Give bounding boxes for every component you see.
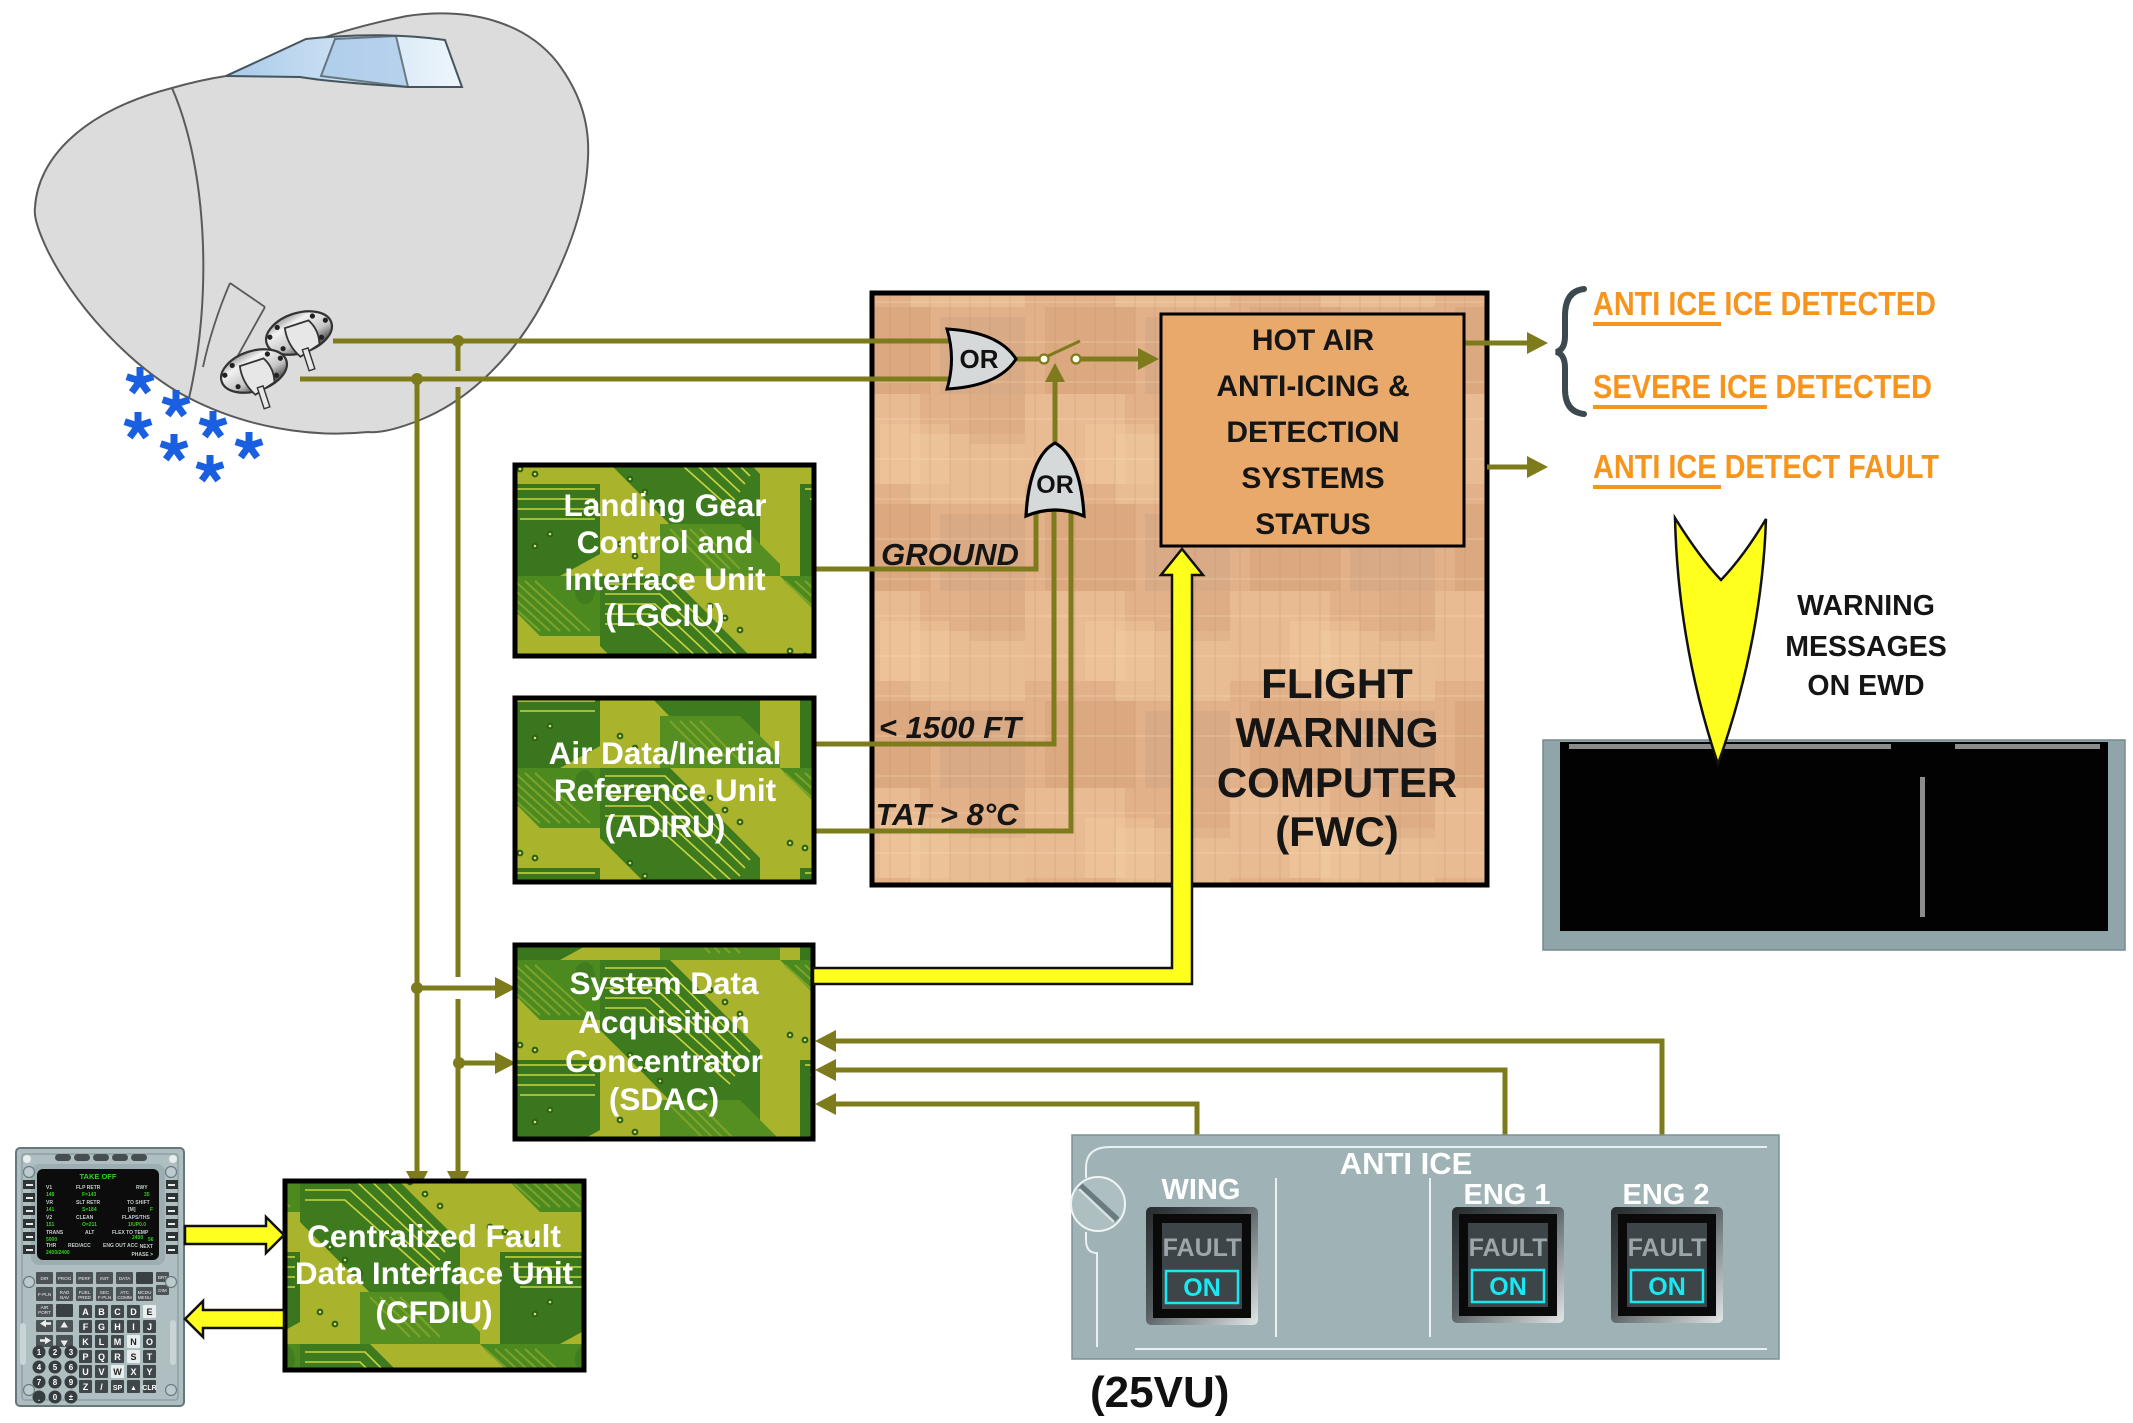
- svg-text:(FWC): (FWC): [1275, 808, 1399, 855]
- svg-text:INIT: INIT: [100, 1276, 109, 1281]
- svg-text:STATUS: STATUS: [1255, 508, 1371, 541]
- svg-text:RED/ACC: RED/ACC: [68, 1243, 91, 1249]
- svg-text:[M]: [M]: [128, 1207, 136, 1213]
- svg-text:TAT > 8°C: TAT > 8°C: [875, 797, 1019, 832]
- svg-text:ENG 1: ENG 1: [1463, 1179, 1550, 1211]
- svg-text:System Data: System Data: [569, 965, 759, 1001]
- svg-text:F-PLN: F-PLN: [98, 1295, 111, 1300]
- svg-text:H: H: [114, 1322, 121, 1332]
- svg-text:9: 9: [69, 1378, 74, 1387]
- svg-text:J: J: [147, 1322, 152, 1332]
- svg-text:NEXT: NEXT: [140, 1244, 153, 1250]
- svg-text:T: T: [147, 1352, 153, 1362]
- svg-text:ANTI ICE ICE DETECTED: ANTI ICE ICE DETECTED: [1593, 285, 1936, 322]
- svg-text:K: K: [82, 1337, 89, 1347]
- svg-text:FLEX TO TEMP: FLEX TO TEMP: [112, 1230, 149, 1236]
- svg-text:L: L: [99, 1337, 105, 1347]
- svg-text:(25VU): (25VU): [1090, 1368, 1229, 1417]
- svg-text:3: 3: [69, 1348, 74, 1357]
- svg-text:P: P: [82, 1352, 88, 1362]
- svg-text:TO SHIFT: TO SHIFT: [127, 1200, 150, 1206]
- svg-text:V1: V1: [46, 1185, 52, 1191]
- svg-text:R: R: [114, 1352, 121, 1362]
- svg-text:DIM: DIM: [158, 1288, 167, 1293]
- svg-text:FLAPS/THS: FLAPS/THS: [122, 1215, 150, 1221]
- svg-text:ENG 2: ENG 2: [1622, 1179, 1709, 1211]
- svg-text:Q: Q: [98, 1352, 105, 1362]
- svg-text:ALT: ALT: [85, 1230, 94, 1236]
- svg-text:SP: SP: [113, 1385, 123, 1392]
- svg-text:< 1500 FT: < 1500 FT: [879, 710, 1024, 745]
- svg-text:O: O: [146, 1337, 153, 1347]
- svg-text:F=143: F=143: [82, 1192, 97, 1198]
- svg-text:Control and: Control and: [577, 524, 754, 560]
- svg-text:MESSAGES: MESSAGES: [1785, 631, 1947, 663]
- svg-text:ON: ON: [1648, 1273, 1686, 1301]
- svg-text:VR: VR: [46, 1200, 53, 1206]
- svg-text:Data Interface Unit: Data Interface Unit: [295, 1255, 574, 1291]
- svg-text:4: 4: [37, 1363, 42, 1372]
- svg-text:(SDAC): (SDAC): [609, 1081, 719, 1117]
- svg-text:2: 2: [53, 1348, 58, 1357]
- svg-text:▲: ▲: [130, 1385, 137, 1392]
- svg-text:Acquisition: Acquisition: [578, 1004, 750, 1040]
- svg-text:Air Data/Inertial: Air Data/Inertial: [549, 735, 782, 771]
- svg-text:8: 8: [53, 1378, 58, 1387]
- svg-text:S=184: S=184: [82, 1207, 97, 1213]
- svg-text:Z: Z: [83, 1382, 89, 1392]
- svg-text:5: 5: [53, 1363, 58, 1372]
- svg-text:PRED: PRED: [78, 1295, 91, 1300]
- svg-text:ON: ON: [1183, 1274, 1221, 1302]
- svg-text:NAV: NAV: [60, 1295, 70, 1300]
- svg-text:WARNING: WARNING: [1236, 709, 1439, 756]
- svg-text:ANTI-ICING &: ANTI-ICING &: [1216, 370, 1409, 403]
- svg-text:ON EWD: ON EWD: [1807, 670, 1924, 702]
- svg-text:6: 6: [69, 1363, 74, 1372]
- svg-text:CLEAN: CLEAN: [76, 1215, 94, 1221]
- svg-text:Interface Unit: Interface Unit: [564, 561, 766, 597]
- svg-text:ON: ON: [1489, 1273, 1527, 1301]
- svg-text:DATA: DATA: [119, 1276, 132, 1281]
- svg-text:WING: WING: [1162, 1174, 1241, 1206]
- svg-text:F: F: [150, 1207, 153, 1213]
- svg-text:FAULT: FAULT: [1469, 1234, 1548, 1262]
- svg-text:1/UP0.0: 1/UP0.0: [128, 1222, 146, 1228]
- svg-text:151: 151: [46, 1222, 55, 1228]
- svg-text:X: X: [130, 1367, 136, 1377]
- svg-text:SEVERE ICE DETECTED: SEVERE ICE DETECTED: [1593, 368, 1932, 405]
- svg-text:A: A: [82, 1307, 89, 1317]
- svg-text:Concentrator: Concentrator: [565, 1043, 763, 1079]
- svg-text:ENG OUT ACC: ENG OUT ACC: [103, 1243, 138, 1249]
- svg-text:D: D: [130, 1307, 137, 1317]
- svg-text:PHASE >: PHASE >: [131, 1252, 153, 1258]
- svg-text:SYSTEMS: SYSTEMS: [1241, 462, 1384, 495]
- svg-text:G: G: [98, 1322, 105, 1332]
- svg-text:±: ±: [69, 1393, 74, 1402]
- svg-text:B: B: [98, 1307, 105, 1317]
- svg-text:2400: 2400: [132, 1235, 143, 1241]
- svg-text:RWY: RWY: [136, 1185, 148, 1191]
- svg-text:E: E: [146, 1307, 152, 1317]
- svg-text:56: 56: [148, 1237, 154, 1243]
- svg-text:148: 148: [46, 1192, 55, 1198]
- svg-text:COMPUTER: COMPUTER: [1217, 759, 1457, 806]
- svg-text:FLP RETR: FLP RETR: [76, 1185, 101, 1191]
- svg-text:U: U: [82, 1367, 89, 1377]
- svg-text:SLT RETR: SLT RETR: [76, 1200, 100, 1206]
- svg-text:(CFDIU): (CFDIU): [375, 1294, 492, 1330]
- svg-text:FLIGHT: FLIGHT: [1261, 660, 1413, 707]
- svg-text:2400/2400: 2400/2400: [46, 1250, 70, 1256]
- svg-text:THR: THR: [46, 1243, 57, 1249]
- svg-text:Centralized Fault: Centralized Fault: [307, 1218, 561, 1254]
- svg-text:(ADIRU): (ADIRU): [605, 808, 726, 844]
- svg-text:Reference Unit: Reference Unit: [554, 772, 777, 808]
- svg-text:0: 0: [53, 1393, 58, 1402]
- svg-text:I: I: [132, 1322, 135, 1332]
- svg-text:S: S: [130, 1352, 136, 1362]
- svg-text:1: 1: [37, 1348, 42, 1357]
- svg-text:OR: OR: [1036, 471, 1074, 499]
- svg-text:ANTI ICE DETECT FAULT: ANTI ICE DETECT FAULT: [1593, 448, 1939, 485]
- svg-text:35: 35: [144, 1192, 150, 1198]
- svg-text:HOT AIR: HOT AIR: [1252, 324, 1375, 357]
- svg-text:V: V: [98, 1367, 104, 1377]
- svg-text:(LGCIU): (LGCIU): [606, 597, 725, 633]
- svg-text:PROG: PROG: [58, 1276, 72, 1281]
- svg-text:ANTI ICE: ANTI ICE: [1340, 1146, 1473, 1181]
- svg-text:N: N: [130, 1337, 137, 1347]
- svg-text:MENU: MENU: [138, 1295, 152, 1300]
- svg-text:7: 7: [37, 1378, 42, 1387]
- svg-text:FAULT: FAULT: [1628, 1234, 1707, 1262]
- svg-text:COMM: COMM: [117, 1295, 132, 1300]
- svg-text:F-PLN: F-PLN: [38, 1292, 51, 1297]
- svg-text:DIR: DIR: [41, 1276, 50, 1281]
- svg-text:M: M: [114, 1337, 122, 1347]
- svg-text:CLR: CLR: [142, 1385, 156, 1392]
- svg-text:GROUND: GROUND: [881, 537, 1019, 572]
- svg-text:PERF: PERF: [78, 1276, 90, 1281]
- svg-text:WARNING: WARNING: [1797, 590, 1935, 622]
- svg-text:PORT: PORT: [38, 1310, 51, 1315]
- svg-text:OR: OR: [960, 344, 999, 374]
- svg-text:O=211: O=211: [82, 1222, 97, 1228]
- svg-text:F: F: [83, 1322, 89, 1332]
- svg-text:DETECTION: DETECTION: [1226, 416, 1399, 449]
- svg-text:Y: Y: [146, 1367, 152, 1377]
- svg-text:TAKE OFF: TAKE OFF: [80, 1172, 117, 1181]
- svg-text:FAULT: FAULT: [1163, 1234, 1242, 1262]
- svg-text:W: W: [113, 1367, 122, 1377]
- svg-text:.: .: [38, 1394, 40, 1403]
- svg-text:Landing Gear: Landing Gear: [563, 487, 766, 523]
- svg-text:C: C: [114, 1307, 121, 1317]
- svg-text:141: 141: [46, 1207, 55, 1213]
- svg-text:TRANS: TRANS: [46, 1230, 64, 1236]
- svg-text:V2: V2: [46, 1215, 52, 1221]
